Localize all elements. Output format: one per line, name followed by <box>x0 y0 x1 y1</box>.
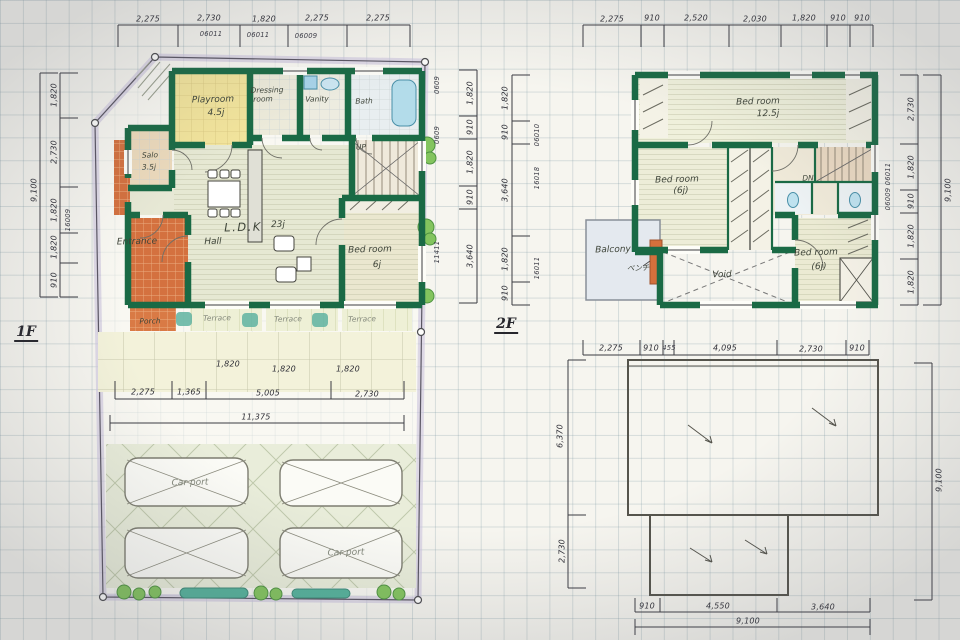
room-size-salo: 3.5j <box>142 162 156 171</box>
floor-label-1f: 1F <box>14 324 38 342</box>
dim-label: 1,820 <box>907 270 916 294</box>
dim-label: 2,520 <box>684 14 708 23</box>
dim-label: 2,730 <box>355 390 379 399</box>
dim-label: 2,275 <box>305 14 329 23</box>
dim-label: 2,730 <box>799 345 823 354</box>
room-size-bedroom-left: (6j) <box>673 186 689 196</box>
window-code: 0609 <box>433 76 441 94</box>
stairs-up-label: UP <box>356 142 366 151</box>
room-label-balcony: Balcony <box>595 245 631 256</box>
dim-label: 2,030 <box>743 15 767 24</box>
dim-label: 2,730 <box>907 97 916 121</box>
dim-label: 2,275 <box>136 15 160 24</box>
room-label-hall: Hall <box>204 237 222 247</box>
dim-label: 11,375 <box>241 413 270 422</box>
dim-label: 1,820 <box>907 155 916 179</box>
dim-label: 910 <box>466 119 475 135</box>
dim-label: 910 <box>50 272 59 288</box>
dim-label: 1,820 <box>50 198 59 222</box>
terrace-label: Terrace <box>348 314 376 324</box>
room-size-bedroom: 6j <box>373 260 381 270</box>
window-code: 16011 <box>533 257 541 280</box>
dim-label: 5,005 <box>256 389 280 398</box>
dim-label: 1,820 <box>501 247 510 271</box>
floor-label-2f: 2F <box>494 316 518 334</box>
dim-label: 2,730 <box>50 140 59 164</box>
f1-carport <box>106 444 416 588</box>
room-size-bedroom-right: (6j) <box>811 262 827 272</box>
dim-label: 1,820 <box>501 86 510 110</box>
roof-plan <box>568 360 932 635</box>
dim-label: 1,820 <box>252 15 276 24</box>
room-label-void: Void <box>712 270 732 281</box>
dim-label: 1,820 <box>50 235 59 259</box>
room-label-bedroom-main: Bed room <box>736 96 780 107</box>
window-code: 06009 <box>295 32 318 40</box>
dim-label: 2,275 <box>131 388 155 397</box>
room-label-dressing: room <box>253 94 273 104</box>
dim-label: 910 <box>854 14 870 23</box>
dim-label: 1,820 <box>907 224 916 248</box>
room-label-salo: Salo <box>142 150 158 159</box>
room-label-bedroom: Bed room <box>348 244 392 255</box>
dim-label: 9,100 <box>736 617 760 626</box>
room-label-bedroom-left: Bed room <box>655 174 699 185</box>
room-label-playroom: Playroom <box>192 94 234 105</box>
window-code: 06010 <box>533 124 541 147</box>
dim-label: 2,730 <box>558 539 567 563</box>
dim-label: 1,820 <box>466 150 475 174</box>
dim-label: 3,640 <box>811 603 835 612</box>
window-code: 06009 <box>884 188 892 211</box>
dim-label: 1,820 <box>50 83 59 107</box>
window-code: 06011 <box>247 31 270 39</box>
window-code: 16009 <box>64 209 72 232</box>
dim-label: 2,730 <box>197 14 221 23</box>
dim-label: 910 <box>644 14 660 23</box>
dim-label: 455 <box>662 344 676 352</box>
dim-label: 9,100 <box>935 468 944 492</box>
window-code: 0609 <box>433 126 441 144</box>
dim-label: 910 <box>907 193 916 209</box>
room-size-bedroom-main: 12.5j <box>757 109 780 120</box>
dim-label: 1,820 <box>466 81 475 105</box>
dim-label: 1,820 <box>272 365 296 374</box>
room-label-bath: Bath <box>355 96 373 105</box>
dim-label: 4,095 <box>713 344 737 353</box>
room-size-ldk: 23j <box>271 220 285 230</box>
dim-label: 9,100 <box>30 178 39 202</box>
dim-label: 910 <box>639 602 655 611</box>
window-code: 11411 <box>433 241 441 264</box>
dim-label: 1,365 <box>177 388 201 397</box>
room-label-entrance: Entrance <box>117 236 158 247</box>
dim-label: 910 <box>466 189 475 205</box>
terrace-label: Terrace <box>274 314 302 324</box>
dim-label: 2,275 <box>599 344 623 353</box>
floor-plan-sketch-page: 2,275 2,730 1,820 2,275 2,275 06011 0601… <box>0 0 960 640</box>
dim-label: 910 <box>830 14 846 23</box>
dim-label: 1,820 <box>216 360 240 369</box>
dim-label: 1,820 <box>336 365 360 374</box>
dim-label: 1,820 <box>792 14 816 23</box>
dim-label: 910 <box>501 285 510 301</box>
dim-label: 4,550 <box>706 602 730 611</box>
room-label-vanity: Vanity <box>305 94 329 104</box>
dim-label: 910 <box>849 344 865 353</box>
room-label-ldk: L.D.K <box>224 220 262 235</box>
room-label-bedroom-right: Bed room <box>794 247 838 258</box>
terrace-label: Terrace <box>203 313 231 323</box>
dim-label: 2,275 <box>600 15 624 24</box>
balcony-bench-note: ベンチ <box>627 262 650 274</box>
carport-label: Car port <box>171 478 208 489</box>
dim-label: 2,275 <box>366 14 390 23</box>
room-label-porch: Porch <box>139 316 160 326</box>
dim-label: 910 <box>501 124 510 140</box>
carport-label: Car port <box>327 548 364 559</box>
room-size-playroom: 4.5j <box>207 108 224 118</box>
stairs-down-label: DN <box>802 173 814 182</box>
dim-label: 6,370 <box>556 424 565 448</box>
dim-label: 9,100 <box>944 178 953 202</box>
window-code: 06011 <box>884 163 892 186</box>
dim-label: 910 <box>643 344 659 353</box>
window-code: 06011 <box>200 30 223 38</box>
dim-label: 3,640 <box>466 244 475 268</box>
dim-label: 3,640 <box>501 178 510 202</box>
window-code: 16018 <box>533 167 541 190</box>
